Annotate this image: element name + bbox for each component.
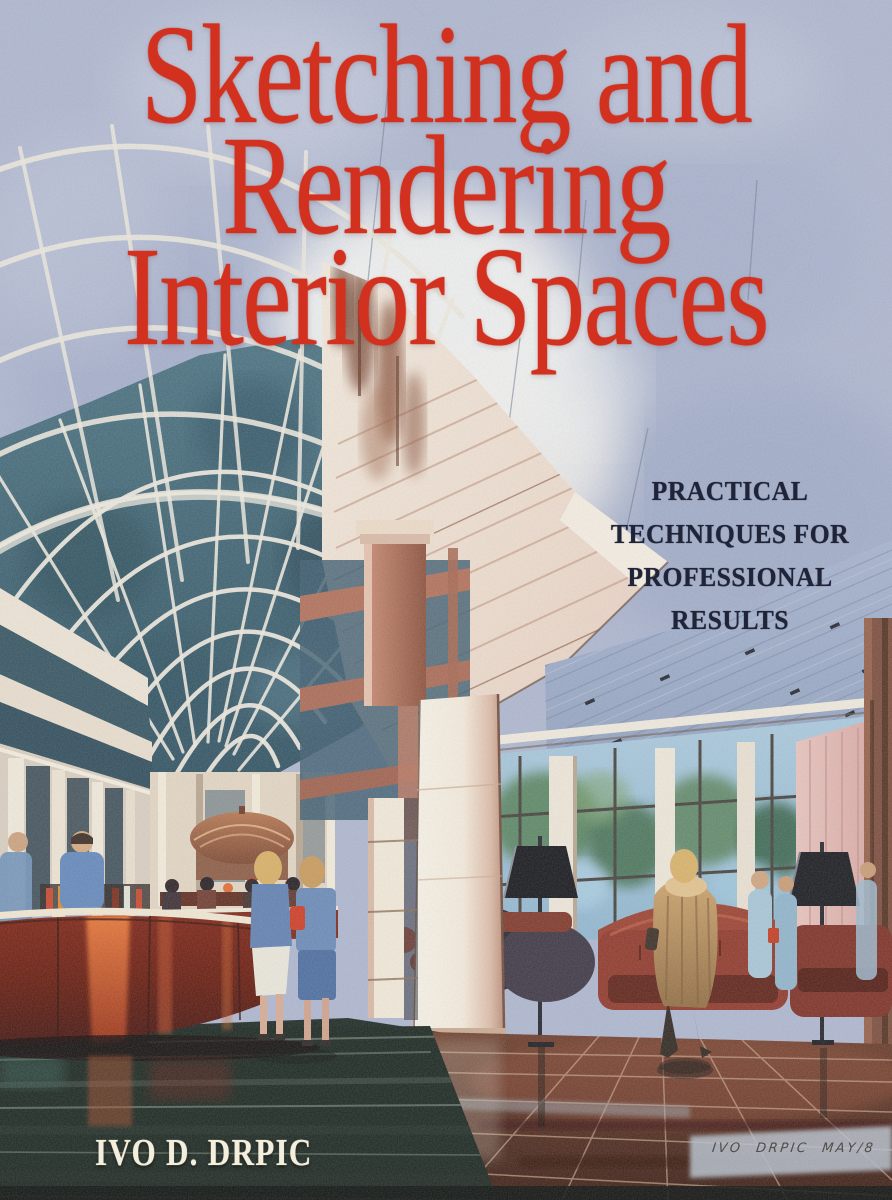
book-title: Sketching and Rendering Interior Spaces bbox=[98, 19, 794, 352]
subtitle-line-3: PROFESSIONAL bbox=[580, 556, 880, 599]
subtitle-line-2: TECHNIQUES FOR bbox=[580, 513, 880, 556]
title-line-3: Interior Spaces bbox=[98, 241, 794, 352]
artist-signature: IVO DRPIC MAY/8 bbox=[711, 1141, 876, 1156]
subtitle-line-1: PRACTICAL bbox=[580, 470, 880, 513]
book-cover: Sketching and Rendering Interior Spaces … bbox=[0, 0, 892, 1200]
subtitle-line-4: RESULTS bbox=[580, 599, 880, 642]
author-name: IVO D. DRPIC bbox=[95, 1131, 313, 1175]
book-subtitle: PRACTICAL TECHNIQUES FOR PROFESSIONAL RE… bbox=[580, 470, 880, 642]
